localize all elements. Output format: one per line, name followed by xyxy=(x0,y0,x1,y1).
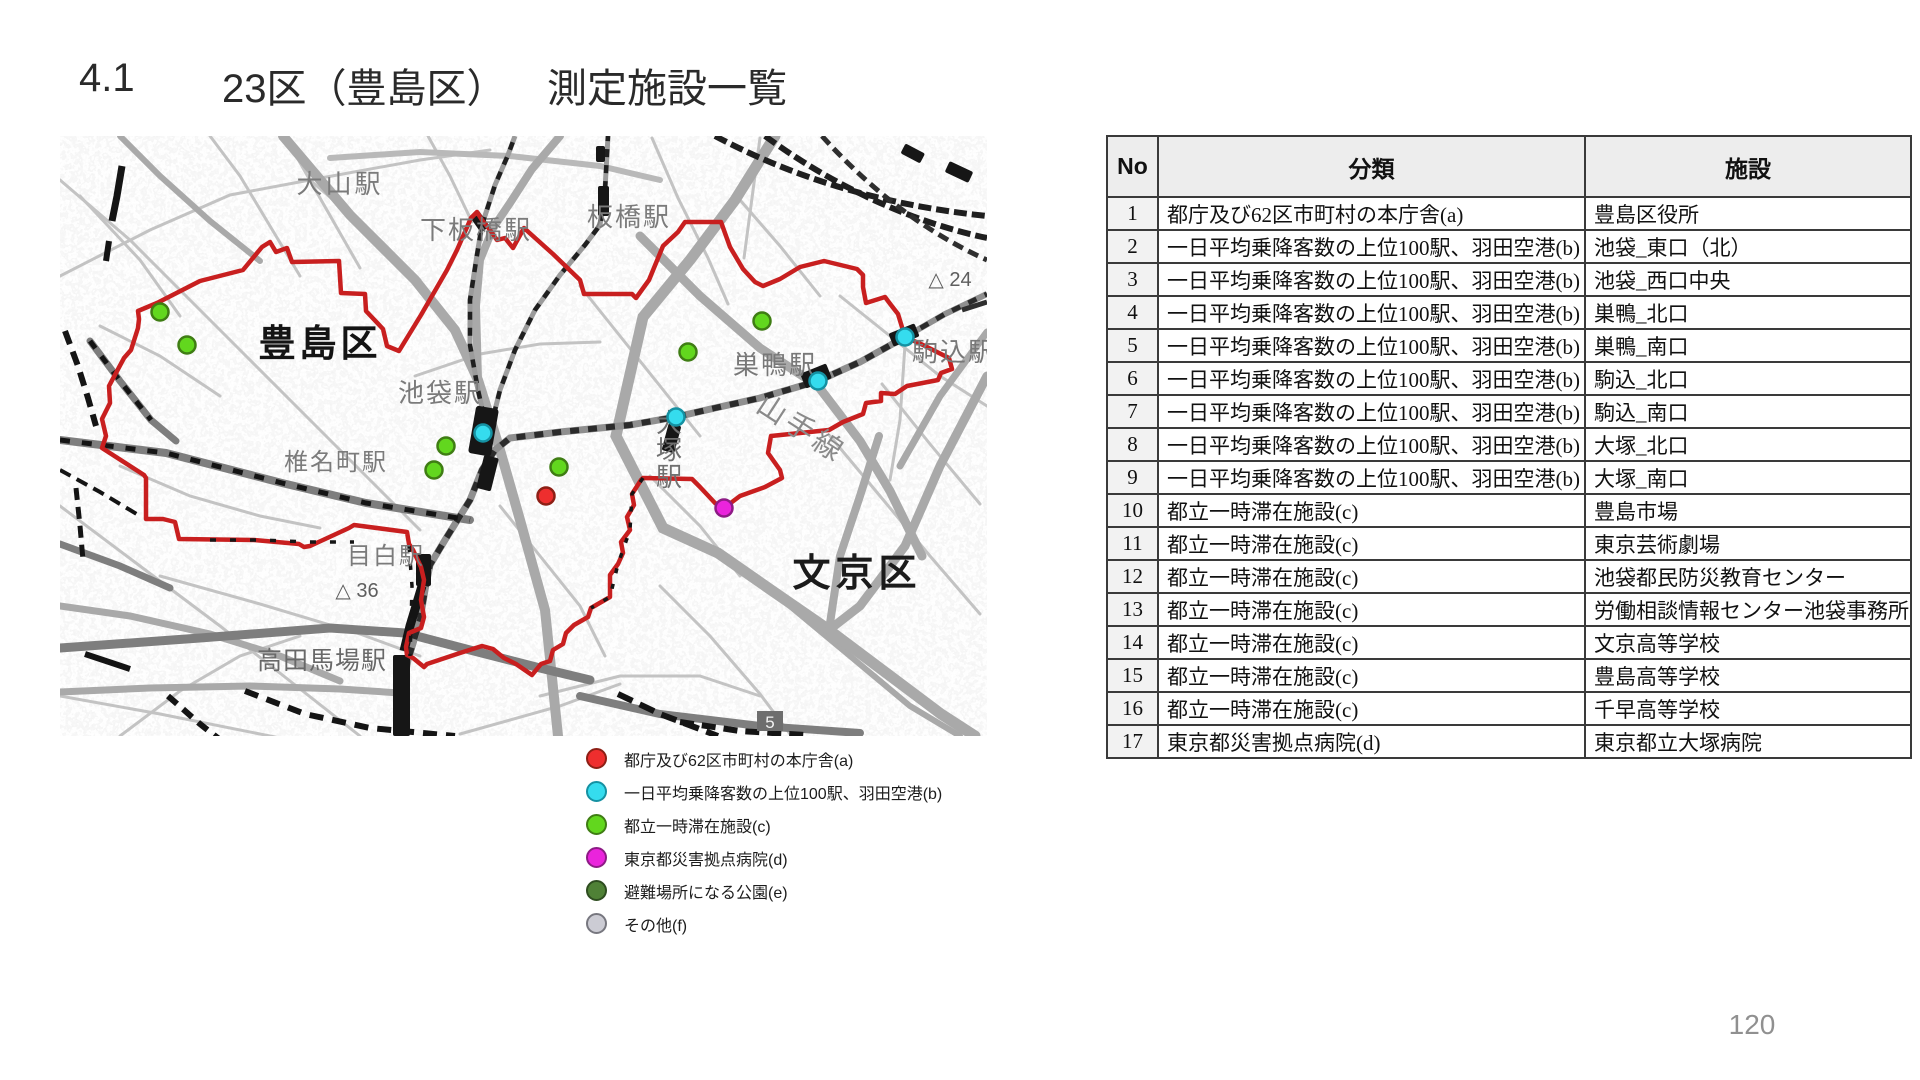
svg-text:池袋駅: 池袋駅 xyxy=(398,378,482,408)
svg-text:5: 5 xyxy=(765,713,774,732)
svg-text:椎名町駅: 椎名町駅 xyxy=(284,449,388,476)
svg-text:△ 36: △ 36 xyxy=(335,580,378,602)
svg-text:塚: 塚 xyxy=(656,435,682,465)
svg-text:△ 24: △ 24 xyxy=(928,269,971,291)
svg-text:大山駅: 大山駅 xyxy=(296,169,383,199)
svg-text:豊島区: 豊島区 xyxy=(259,323,382,364)
svg-text:文京区: 文京区 xyxy=(792,553,921,595)
svg-text:巣鴨駅: 巣鴨駅 xyxy=(733,350,817,380)
svg-text:駅: 駅 xyxy=(656,462,682,492)
svg-text:目白駅: 目白駅 xyxy=(347,543,425,570)
svg-text:板橋駅: 板橋駅 xyxy=(587,202,671,232)
svg-text:駒込駅: 駒込駅 xyxy=(912,337,987,367)
svg-text:下板橋駅: 下板橋駅 xyxy=(420,215,532,245)
svg-text:高田馬場駅: 高田馬場駅 xyxy=(257,647,387,675)
